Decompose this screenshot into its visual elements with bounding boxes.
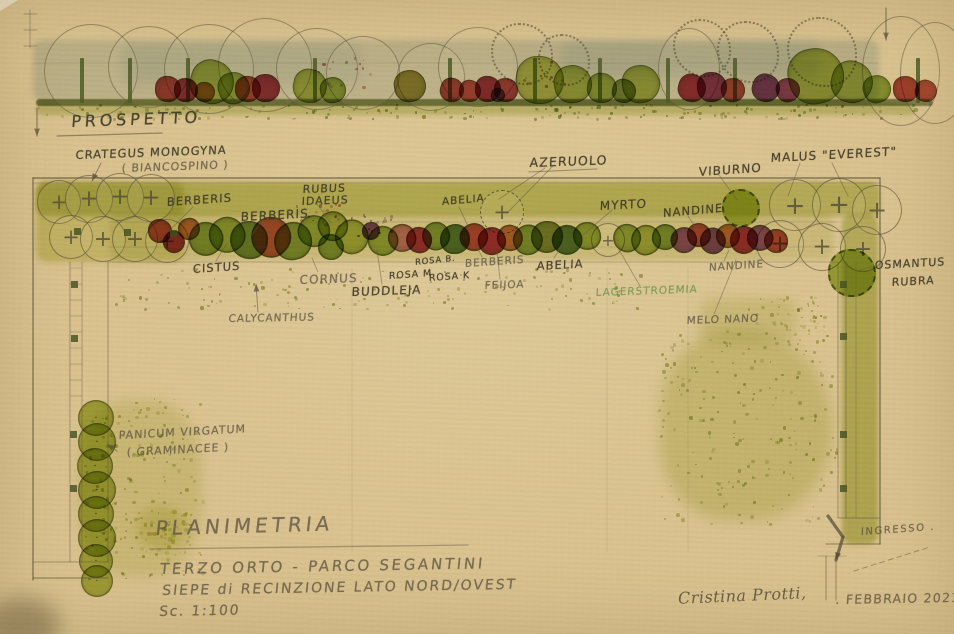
speckle-dot: [812, 516, 814, 518]
speckle-dot: [360, 281, 362, 283]
speckle-dot: [821, 384, 823, 386]
speckle-dot: [396, 104, 398, 106]
speckle-dot: [761, 306, 764, 309]
speckle-dot: [643, 114, 645, 116]
speckle-dot: [661, 496, 663, 498]
speckle-dot: [210, 286, 212, 288]
speckle-dot: [823, 325, 826, 328]
speckle-dot: [820, 374, 824, 378]
speckle-dot: [862, 106, 863, 107]
speckle-dot: [288, 285, 291, 288]
speckle-dot: [797, 371, 801, 375]
speckle-dot: [703, 398, 705, 400]
fence-post-plan: [124, 229, 131, 236]
speckle-dot: [820, 478, 823, 481]
speckle-dot: [138, 411, 141, 414]
speckle-dot: [118, 415, 121, 418]
speckle-dot: [555, 108, 558, 111]
speckle-dot: [167, 277, 169, 279]
speckle-dot: [680, 393, 683, 396]
speckle-dot: [658, 409, 661, 412]
speckle-dot: [608, 272, 610, 274]
speckle-dot: [181, 409, 183, 411]
speckle-dot: [555, 288, 558, 291]
speckle-dot: [267, 117, 270, 120]
speckle-dot: [826, 452, 830, 456]
speckle-dot: [830, 471, 833, 474]
speckle-dot: [740, 522, 743, 525]
speckle-dot: [477, 277, 480, 280]
speckle-dot: [805, 519, 809, 523]
speckle-dot: [61, 115, 64, 118]
speckle-dot: [608, 117, 611, 120]
speckle-dot: [709, 457, 712, 460]
speckle-dot: [640, 116, 641, 117]
speckle-dot: [295, 298, 298, 301]
speckle-dot: [415, 111, 417, 113]
speckle-dot: [747, 465, 750, 468]
author-signature: Cristina Protti,: [678, 583, 807, 608]
speckle-dot: [151, 510, 153, 512]
speckle-dot: [682, 378, 684, 380]
plant-label: ROSA K: [429, 270, 470, 284]
speckle-dot: [588, 297, 591, 300]
speckle-dot: [816, 116, 819, 119]
speckle-dot: [134, 518, 137, 521]
speckle-dot: [135, 416, 139, 420]
date-note: . FEBBRAIO 2021: [835, 590, 954, 607]
scale-note: Sc. 1:100: [158, 603, 241, 620]
speckle-dot: [203, 299, 205, 301]
plant-label: NANDINE: [709, 258, 764, 274]
speckle-dot: [795, 442, 797, 444]
speckle-dot: [822, 339, 826, 343]
plant-label: ( BIANCOSPINO ): [121, 158, 229, 175]
speckle-dot: [712, 396, 715, 399]
plant-label: BUDDLEJA: [351, 283, 422, 299]
plant-label: MALUS "EVEREST": [771, 144, 898, 165]
speckle-dot: [817, 323, 819, 325]
speckle-dot: [813, 302, 816, 305]
speckle-dot: [694, 367, 696, 369]
speckle-dot: [808, 305, 810, 307]
speckle-dot: [292, 271, 294, 273]
speckle-dot: [832, 437, 834, 439]
speckle-dot: [422, 115, 425, 118]
fence-post-plan: [840, 485, 847, 492]
speckle-dot: [427, 290, 430, 293]
speckle-dot: [485, 274, 488, 277]
speckle-dot: [844, 114, 846, 116]
speckle-dot: [172, 510, 176, 514]
speckle-dot: [339, 308, 340, 309]
speckle-dot: [748, 308, 750, 310]
speckle-dot: [737, 391, 740, 394]
speckle-dot: [261, 286, 264, 289]
speckle-dot: [678, 498, 681, 501]
speckle-dot: [783, 299, 785, 301]
speckle-dot: [260, 281, 263, 284]
speckle-dot: [189, 458, 193, 462]
speckle-dot: [670, 485, 672, 487]
speckle-dot: [564, 272, 566, 274]
speckle-dot: [813, 351, 817, 355]
speckle-dot: [513, 292, 516, 295]
speckle-dot: [700, 501, 703, 504]
speckle-dot: [769, 523, 771, 525]
speckle-dot: [592, 302, 595, 305]
speckle-dot: [831, 518, 833, 520]
fence-post-plan: [840, 333, 847, 340]
speckle-dot: [717, 411, 719, 413]
speckle-dot: [501, 108, 504, 111]
speckle-dot: [852, 113, 854, 115]
speckle-dot: [443, 301, 446, 304]
plant-label: AZERUOLO: [529, 152, 608, 170]
speckle-dot: [180, 492, 182, 494]
speckle-dot: [795, 348, 798, 351]
speckle-dot: [813, 109, 815, 111]
speckle-dot: [207, 305, 209, 307]
speckle-dot: [750, 108, 753, 111]
speckle-dot: [834, 457, 836, 459]
speckle-dot: [808, 333, 810, 335]
speckle-dot: [541, 116, 544, 119]
speckle-dot: [813, 320, 816, 323]
speckle-dot: [234, 277, 237, 280]
speckle-dot: [814, 414, 817, 417]
fence-post: [128, 58, 132, 103]
paper-shadow-artifact: [0, 598, 60, 634]
speckle-dot: [125, 530, 127, 532]
speckle-dot: [665, 363, 669, 367]
speckle-dot: [140, 409, 142, 411]
speckle-dot: [689, 416, 692, 419]
speckle-dot: [366, 308, 368, 310]
speckle-dot: [666, 115, 668, 117]
speckle-dot: [775, 378, 778, 381]
speckle-dot: [534, 118, 537, 121]
speckle-dot: [729, 342, 731, 344]
speckle-dot: [214, 278, 216, 280]
speckle-dot: [803, 354, 805, 356]
speckle-dot: [353, 303, 356, 306]
speckle-dot: [447, 298, 450, 301]
speckle-dot: [654, 110, 657, 113]
speckle-dot: [679, 334, 682, 337]
speckle-dot: [548, 308, 551, 311]
speckle-dot: [799, 339, 801, 341]
speckle-dot: [724, 115, 727, 118]
speckle-dot: [726, 345, 728, 347]
speckle-dot: [676, 513, 680, 517]
speckle-dot: [710, 418, 713, 421]
speckle-dot: [710, 523, 712, 525]
speckle-dot: [786, 296, 789, 299]
speckle-dot: [288, 305, 290, 307]
speckle-dot: [783, 471, 786, 474]
speckle-dot: [146, 407, 149, 410]
speckle-dot: [753, 501, 755, 503]
hedge-plant-circle: [764, 229, 789, 254]
speckle-dot: [132, 501, 135, 504]
speckle-dot: [683, 112, 686, 115]
speckle-dot: [573, 112, 576, 115]
speckle-dot: [199, 403, 202, 406]
fence-post-plan: [71, 335, 78, 342]
speckle-dot: [128, 279, 130, 281]
speckle-dot: [750, 515, 754, 519]
speckle-dot: [785, 117, 788, 120]
speckle-dot: [692, 452, 694, 454]
speckle-dot: [253, 283, 256, 286]
speckle-dot: [452, 298, 454, 300]
speckle-dot: [665, 358, 667, 360]
speckle-dot: [612, 303, 613, 304]
speckle-dot: [396, 115, 399, 118]
crayon-patch: [660, 330, 832, 520]
speckle-dot: [813, 316, 816, 319]
plant-label: OSMANTUS: [875, 255, 946, 272]
speckle-dot: [390, 219, 392, 221]
speckle-dot: [695, 371, 698, 374]
speckle-dot: [147, 532, 151, 536]
speckle-dot: [254, 305, 256, 307]
plant-label: CORNUS: [299, 271, 358, 287]
speckle-dot: [136, 491, 138, 493]
speckle-dot: [823, 485, 826, 488]
pencil-line: [57, 133, 162, 136]
speckle-dot: [349, 117, 352, 120]
speckle-dot: [765, 474, 769, 478]
speckle-dot: [709, 105, 711, 107]
speckle-dot: [200, 554, 202, 556]
speckle-dot: [135, 536, 138, 539]
speckle-dot: [245, 116, 247, 118]
speckle-dot: [469, 115, 472, 118]
speckle-dot: [444, 111, 447, 114]
speckle-dot: [397, 297, 400, 300]
speckle-dot: [809, 108, 812, 111]
speckle-dot: [721, 117, 723, 119]
speckle-dot: [702, 390, 706, 394]
speckle-dot: [201, 500, 205, 504]
speckle-dot: [433, 302, 435, 304]
speckle-dot: [723, 341, 726, 344]
speckle-dot: [403, 304, 406, 307]
speckle-dot: [712, 448, 716, 452]
speckle-dot: [130, 521, 132, 523]
fence-post: [666, 58, 670, 103]
speckle-dot: [194, 499, 197, 502]
speckle-dot: [789, 461, 792, 464]
plant-label: ABELIA: [537, 257, 584, 273]
speckle-dot: [181, 270, 184, 273]
fence-post-plan: [70, 431, 77, 438]
project-subtitle-line: SIEPE di RECINZIONE LATO NORD/OVEST: [161, 577, 518, 599]
speckle-dot: [726, 330, 729, 333]
speckle-dot: [801, 317, 803, 319]
speckle-dot: [486, 117, 489, 120]
speckle-dot: [610, 112, 613, 115]
speckle-dot: [219, 300, 222, 303]
speckle-dot: [733, 420, 736, 423]
speckle-dot: [798, 401, 802, 405]
speckle-dot: [287, 291, 291, 295]
paper-corner-artifact: [0, 0, 18, 11]
speckle-dot: [240, 286, 242, 288]
speckle-dot: [551, 298, 552, 299]
speckle-dot: [836, 448, 839, 451]
speckle-dot: [699, 118, 701, 120]
speckle-dot: [673, 428, 676, 431]
speckle-dot: [549, 115, 551, 117]
speckle-dot: [661, 390, 663, 392]
speckle-dot: [609, 278, 611, 280]
panicum-grass-circle: ·: [81, 565, 113, 597]
speckle-dot: [811, 310, 813, 312]
speckle-dot: [823, 316, 827, 320]
speckle-dot: [589, 272, 591, 274]
speckle-dot: [464, 113, 465, 114]
fence-post-plan: [70, 485, 77, 492]
speckle-dot: [691, 367, 693, 369]
speckle-dot: [841, 105, 844, 108]
speckle-dot: [174, 399, 176, 401]
speckle-dot: [457, 287, 461, 291]
speckle-dot: [123, 299, 125, 301]
speckle-dot: [835, 451, 838, 454]
speckle-dot: [473, 116, 474, 117]
speckle-dot: [382, 271, 383, 272]
speckle-dot: [673, 362, 676, 365]
speckle-dot: [820, 315, 822, 317]
speckle-dot: [221, 116, 223, 118]
speckle-dot: [166, 461, 168, 463]
plant-label: LAGERSTROEMIA: [595, 283, 698, 299]
speckle-dot: [121, 572, 124, 575]
speckle-dot: [160, 274, 162, 276]
speckle-dot: [636, 307, 639, 310]
speckle-dot: [763, 346, 766, 349]
speckle-dot: [156, 411, 160, 415]
speckle-dot: [754, 477, 756, 479]
speckle-dot: [186, 282, 189, 285]
speckle-dot: [737, 333, 740, 336]
speckle-dot: [148, 289, 150, 291]
plant-label: CISTUS: [193, 259, 241, 276]
speckle-dot: [756, 418, 758, 420]
speckle-dot: [725, 503, 728, 506]
speckle-dot: [124, 536, 126, 538]
speckle-dot: [353, 109, 354, 110]
speckle-dot: [723, 505, 725, 507]
prospetto-section-title: PROSPETTO: [71, 107, 202, 131]
speckle-dot: [164, 543, 166, 545]
speckle-dot: [614, 106, 617, 109]
speckle-dot: [814, 297, 817, 300]
speckle-dot: [835, 107, 836, 108]
speckle-dot: [127, 477, 130, 480]
speckle-dot: [760, 359, 764, 363]
speckle-dot: [294, 296, 296, 298]
garden-design-sheet: ++++++++++++++++········ CRATEGUS MONOGY…: [0, 0, 954, 634]
speckle-dot: [819, 361, 821, 363]
plant-label: FEIJOA: [484, 279, 524, 292]
speckle-dot: [385, 109, 388, 112]
speckle-dot: [778, 118, 780, 120]
speckle-dot: [732, 362, 734, 364]
speckle-dot: [298, 308, 300, 310]
osmantus-circle: [828, 249, 876, 297]
speckle-dot: [372, 118, 374, 120]
speckle-dot: [151, 500, 154, 503]
speckle-dot: [770, 313, 774, 317]
speckle-dot: [782, 390, 784, 392]
speckle-dot: [750, 366, 753, 369]
speckle-dot: [188, 287, 190, 289]
speckle-dot: [337, 299, 339, 301]
speckle-dot: [790, 110, 792, 112]
speckle-dot: [377, 109, 380, 112]
speckle-dot: [816, 340, 819, 343]
speckle-dot: [702, 419, 705, 422]
speckle-dot: [620, 273, 623, 276]
speckle-dot: [115, 551, 118, 554]
speckle-dot: [358, 300, 360, 302]
plant-label: ROSA M: [389, 268, 432, 282]
speckle-dot: [207, 116, 210, 119]
speckle-dot: [643, 107, 645, 109]
speckle-dot: [289, 268, 292, 271]
speckle-dot: [390, 215, 393, 218]
speckle-dot: [679, 117, 682, 120]
fence-post: [80, 58, 84, 103]
speckle-dot: [144, 308, 147, 311]
speckle-dot: [533, 276, 536, 279]
speckle-dot: [342, 106, 344, 108]
speckle-dot: [805, 350, 807, 352]
speckle-dot: [451, 116, 453, 118]
speckle-dot: [171, 539, 175, 543]
speckle-dot: [797, 343, 799, 345]
speckle-dot: [681, 383, 685, 387]
speckle-dot: [787, 313, 789, 315]
plant-label: CALYCANTHUS: [228, 311, 315, 325]
speckle-dot: [742, 438, 744, 440]
speckle-dot: [793, 109, 796, 112]
arrow-head: [835, 552, 841, 560]
speckle-dot: [395, 107, 397, 109]
speckle-dot: [817, 517, 820, 520]
speckle-dot: [733, 116, 736, 119]
speckle-dot: [798, 114, 801, 117]
speckle-dot: [370, 278, 372, 280]
speckle-dot: [128, 420, 130, 422]
speckle-dot: [156, 281, 159, 284]
speckle-dot: [811, 360, 814, 363]
speckle-dot: [807, 303, 809, 305]
speckle-dot: [598, 277, 601, 280]
speckle-dot: [625, 116, 628, 119]
speckle-dot: [809, 520, 812, 523]
speckle-dot: [789, 444, 792, 447]
speckle-dot: [561, 284, 564, 287]
speckle-dot: [765, 116, 767, 118]
speckle-dot: [155, 553, 158, 556]
speckle-dot: [464, 292, 466, 294]
speckle-dot: [577, 116, 579, 118]
